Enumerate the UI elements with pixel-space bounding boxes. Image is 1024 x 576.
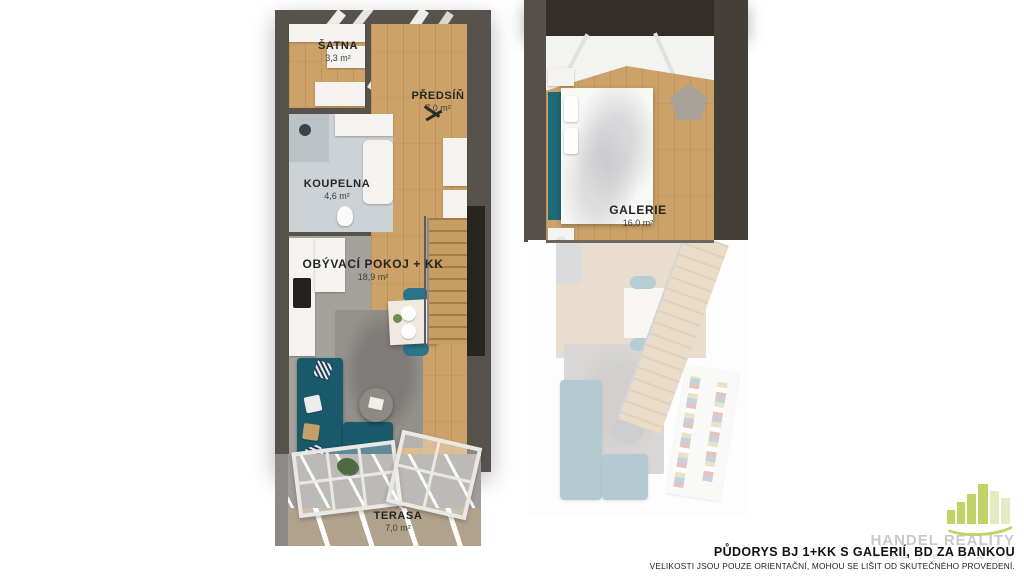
sofa-pillow [304, 395, 323, 414]
gallery-floor-plan: GALERIE 16,0 m² [518, 0, 748, 515]
nightstand [548, 68, 574, 86]
gallery-left-wall [524, 0, 546, 242]
gallery-right-wall [714, 0, 748, 242]
stair-railing [424, 216, 426, 346]
toilet [337, 206, 353, 226]
shower-tray [289, 114, 329, 162]
ground-floor-plan: ŠATNA 3,3 m² PŘEDSÍŇ 7,0 m² KOUPELNA 4,6… [275, 10, 491, 546]
staircase [427, 218, 469, 344]
bathroom-vanity [335, 114, 393, 136]
table-plant [393, 314, 402, 323]
ghost-fridge [556, 244, 582, 284]
plate [401, 306, 416, 321]
floorplan-sheet: ŠATNA 3,3 m² PŘEDSÍŇ 7,0 m² KOUPELNA 4,6… [0, 0, 1024, 576]
ghost-content [528, 240, 748, 515]
side-wall-dark [467, 206, 485, 356]
footer: HANDEL REALITY R E A L E S T A T E PŮDOR… [535, 482, 1015, 571]
ghosted-lower-floor [528, 240, 748, 515]
satna-shelf-block [315, 82, 365, 106]
kitchen-island [315, 238, 345, 292]
terasa-side-wall [275, 454, 288, 546]
shower-head [299, 124, 311, 136]
hall-wardrobe [443, 138, 467, 186]
ghost-dining-chair [630, 276, 656, 289]
plate [401, 324, 416, 339]
satna-shelving [289, 24, 365, 42]
handel-reality-building-logo [941, 482, 1015, 538]
terrace-plant [337, 458, 357, 474]
bed-pillow [564, 128, 578, 154]
satna-shelf-block [327, 46, 365, 68]
bed-headboard [548, 92, 561, 220]
sheet-disclaimer: VELIKOSTI JSOU POUZE ORIENTAČNÍ, MOHOU S… [535, 561, 1015, 571]
sheet-title: PŮDORYS BJ 1+KK S GALERIÍ, BD ZA BANKOU [535, 545, 1015, 559]
gallery-railing [546, 240, 714, 243]
cooktop [293, 278, 311, 308]
pergola-glass-panel [291, 440, 402, 518]
bed-pillow [564, 96, 578, 122]
bathtub [363, 140, 393, 204]
sofa-pillow [302, 423, 320, 441]
